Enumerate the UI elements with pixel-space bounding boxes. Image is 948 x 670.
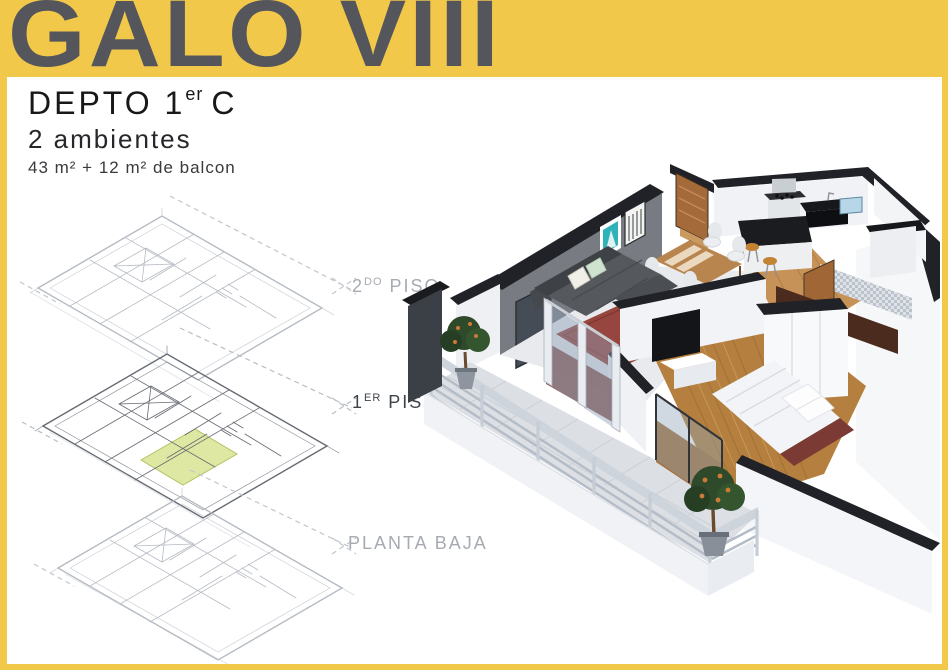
floorplan-stack — [20, 182, 460, 664]
frame-edge-left — [0, 0, 7, 670]
flyer-page: GALO VIII DEPTO 1erC 2 ambientes 43 m² +… — [0, 0, 948, 670]
bar-stool — [763, 257, 777, 265]
corner-pillar — [408, 289, 442, 403]
plan-2do-piso — [20, 196, 356, 380]
render-bar — [738, 216, 812, 276]
frame-edge-right — [942, 0, 948, 670]
construction-lines — [30, 292, 260, 664]
laundry-unit — [870, 226, 916, 278]
unit-name-letter: C — [211, 85, 237, 121]
glass-door-post — [544, 298, 552, 386]
highlighted-unit — [141, 429, 237, 485]
bar-stool — [745, 243, 759, 251]
project-title: GALO VIII — [8, 0, 502, 89]
title-banner: GALO VIII — [0, 0, 948, 77]
glass-door-post — [578, 320, 586, 408]
sink-blue — [840, 197, 862, 214]
apartment-3d-render — [400, 140, 942, 640]
unit-name-main: DEPTO 1 — [28, 85, 185, 121]
unit-area: 43 m² + 12 m² de balcon — [28, 158, 237, 178]
unit-rooms: 2 ambientes — [28, 124, 237, 155]
plan-1er-piso — [22, 328, 356, 518]
bar-counter-top — [738, 216, 812, 247]
oven-window — [772, 178, 796, 193]
glass-door-post — [612, 342, 620, 432]
dining-chair — [728, 236, 747, 261]
plan-planta-baja — [34, 470, 356, 660]
frame-edge-bottom — [0, 664, 948, 670]
unit-name: DEPTO 1erC — [28, 84, 237, 122]
unit-name-superscript: er — [185, 84, 203, 104]
unit-info: DEPTO 1erC 2 ambientes 43 m² + 12 m² de … — [28, 84, 237, 178]
